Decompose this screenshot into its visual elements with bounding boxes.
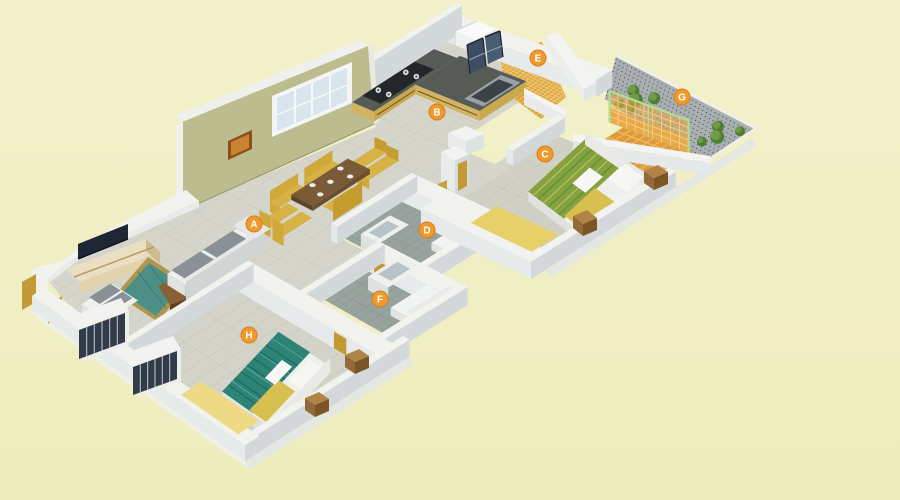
- svg-text:E: E: [535, 54, 542, 65]
- svg-text:C: C: [541, 150, 548, 161]
- svg-text:H: H: [245, 331, 252, 342]
- svg-text:A: A: [250, 220, 257, 231]
- svg-text:G: G: [678, 93, 686, 104]
- svg-text:D: D: [423, 226, 430, 237]
- svg-text:F: F: [377, 295, 383, 306]
- svg-text:B: B: [433, 108, 440, 119]
